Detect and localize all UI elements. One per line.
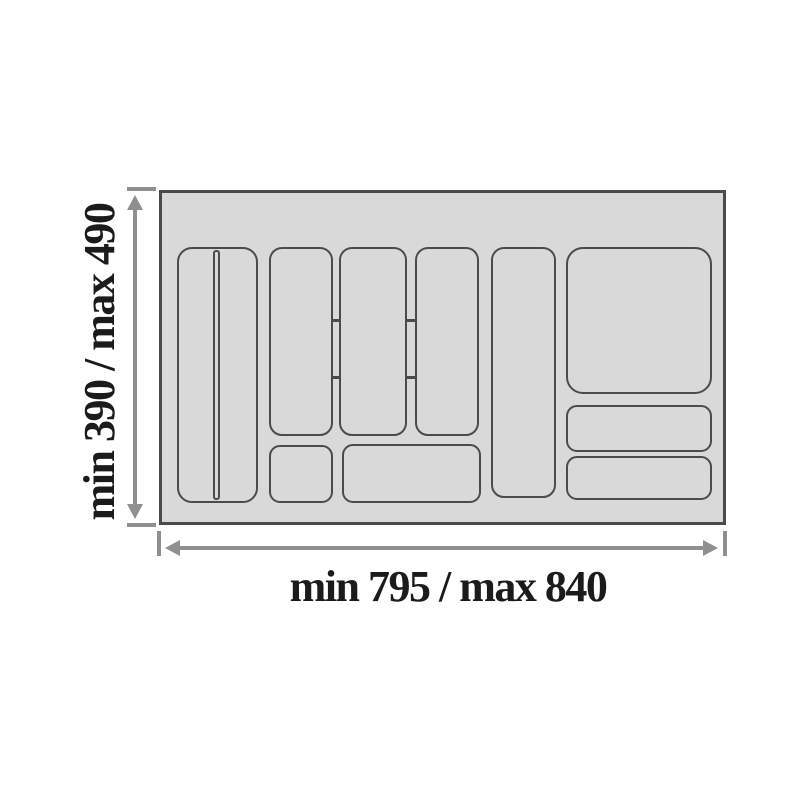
height-dimension-label: min 390 / max 490 (78, 204, 122, 521)
height-extension-tick-bottom (127, 523, 156, 527)
compartment-right-large (566, 247, 712, 394)
divider-connector-4 (405, 376, 417, 379)
compartment-col2-bottom (269, 445, 333, 503)
compartment-col3-top (339, 247, 407, 436)
height-extension-tick-top (127, 187, 156, 191)
down-arrowhead-icon (127, 504, 143, 519)
divider-connector-2 (331, 376, 341, 379)
width-extension-tick-left (157, 531, 161, 556)
right-arrowhead-icon (703, 540, 718, 556)
compartment-col2-top (269, 247, 333, 436)
left-arrowhead-icon (165, 540, 180, 556)
height-dimension-line (133, 208, 137, 508)
compartment-col4-top (415, 247, 479, 436)
width-dimension-label: min 795 / max 840 (290, 565, 607, 609)
divider-connector-1 (331, 319, 341, 322)
compartment-center-bottom-wide (342, 444, 481, 503)
knife-slot (213, 250, 220, 500)
width-dimension-line (178, 546, 706, 550)
width-extension-tick-right (723, 531, 727, 556)
divider-connector-3 (405, 319, 417, 322)
compartment-right-bottom (566, 456, 712, 500)
up-arrowhead-icon (127, 195, 143, 210)
dimension-diagram: min 390 / max 490 min 795 / max 840 (0, 0, 800, 800)
compartment-col5-tall (491, 247, 556, 498)
compartment-right-middle (566, 405, 712, 452)
